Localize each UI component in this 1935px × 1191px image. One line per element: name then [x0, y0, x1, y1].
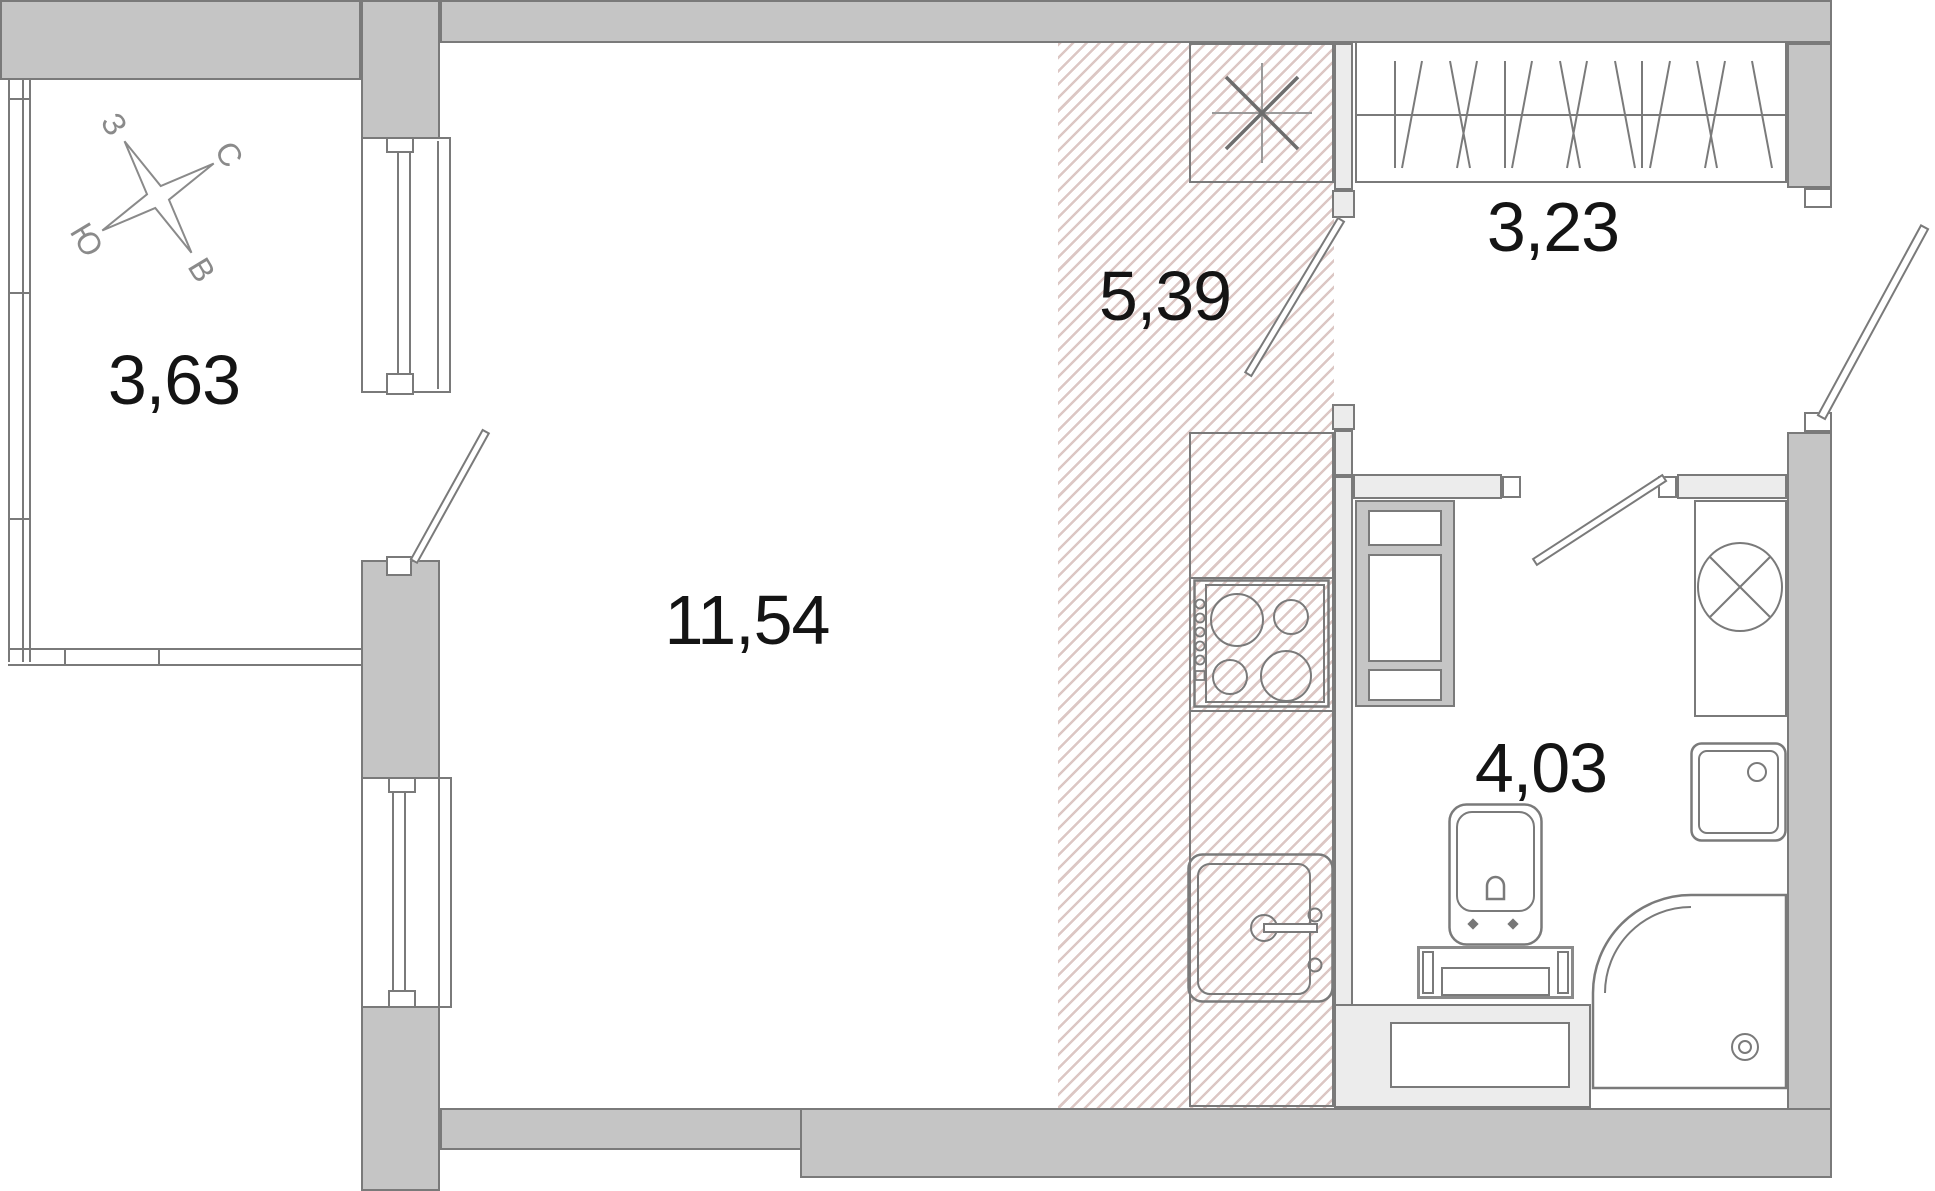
vent-shaft-asterisk-icon [1204, 55, 1320, 171]
balcony-glazing-tick3 [8, 518, 31, 520]
room-window-sill-lip [438, 777, 452, 1008]
balcony-bottom-glazing-tick1 [64, 648, 66, 666]
balcony-glazing-tick2 [8, 292, 31, 294]
wall-right-lower [1787, 432, 1832, 1170]
towel-radiator-end-right [1557, 951, 1569, 994]
partition-bathroom-left [1334, 476, 1353, 1006]
living-room-area-label: 11,54 [665, 580, 830, 660]
kitchen-door-frame-top [1332, 190, 1355, 218]
wall-left-column-upper [361, 560, 440, 782]
balcony-door-leaf [410, 429, 491, 565]
kitchen-area-label: 5,39 [1099, 256, 1231, 336]
partition-kitchen-hall-top [1334, 43, 1353, 190]
window-divider-cap-bottom [386, 373, 414, 395]
bathroom-area-label: 4,03 [1475, 728, 1607, 808]
balcony-door-frame [386, 556, 412, 576]
kitchen-counter [1189, 432, 1334, 1107]
balcony-glazing-inner-line2 [29, 80, 31, 662]
compass-west-label: З [94, 107, 135, 142]
balcony-bottom-glazing-tick2 [158, 648, 160, 666]
bathroom-cabinet-shelf-top [1368, 510, 1442, 546]
towel-radiator-inner [1441, 967, 1550, 996]
wall-top-main [440, 0, 1832, 43]
bathroom-niche [1390, 1022, 1570, 1088]
kitchen-sink-icon [1187, 853, 1334, 1003]
partition-kitchen-hall-mid [1334, 430, 1353, 476]
room-window-cap-bottom [388, 990, 416, 1008]
balcony-glazing-inner-line1 [22, 80, 24, 662]
room-window-cap-top [388, 777, 416, 793]
window-divider-cap-top [386, 137, 414, 153]
compass-south-label: Ю [63, 217, 111, 263]
wall-block-balcony-corner [361, 0, 440, 146]
washing-machine-drum-icon [1694, 500, 1787, 717]
compass-east-label: В [181, 251, 223, 288]
balcony-glazing-tick1 [8, 98, 31, 100]
kitchen-door-frame-bottom [1332, 404, 1355, 430]
wardrobe-hangers-icon [1355, 43, 1787, 183]
window-divider-pane2 [409, 145, 411, 385]
floor-plan: С В Ю З 3,63 11,54 5,39 3,23 4,03 [0, 0, 1935, 1191]
wall-bottom-thin [440, 1108, 802, 1150]
room-window-pane2 [404, 785, 406, 1000]
partition-bathroom-top-left [1353, 474, 1502, 499]
bathroom-cabinet-shelf-bottom [1368, 669, 1442, 701]
hallway-area-label: 3,23 [1487, 187, 1619, 267]
wall-bottom-thick [800, 1108, 1832, 1178]
bathroom-door-frame-left [1502, 476, 1521, 498]
room-window-pane1 [392, 785, 394, 1000]
balcony-bottom-glazing-line1 [8, 648, 361, 650]
wall-left-column-lower [361, 1002, 440, 1191]
balcony-area-label: 3,63 [108, 340, 240, 420]
kitchen-counter-divider2 [1189, 710, 1334, 712]
window-divider-pane3 [437, 141, 439, 389]
partition-bathroom-top-right [1677, 474, 1787, 499]
window-divider-pane1 [397, 145, 399, 385]
compass-rose: С В Ю З [38, 77, 278, 317]
compass-star [69, 108, 247, 286]
wall-right-entry-block [1787, 43, 1832, 188]
bathroom-door-leaf [1532, 474, 1668, 567]
toilet-icon [1448, 803, 1543, 946]
bathroom-cabinet-shelf-mid [1368, 554, 1442, 662]
towel-radiator-end-left [1422, 951, 1434, 994]
entry-door-frame-top [1804, 188, 1832, 208]
washbasin-icon [1690, 742, 1787, 842]
shower-icon [1591, 893, 1788, 1090]
compass-north-label: С [208, 135, 251, 173]
balcony-bottom-glazing-line2 [8, 664, 361, 666]
stove-icon [1193, 579, 1330, 708]
balcony-glazing-outer-line [8, 80, 10, 662]
wall-top-balcony [0, 0, 361, 80]
entry-door-leaf [1817, 224, 1930, 420]
